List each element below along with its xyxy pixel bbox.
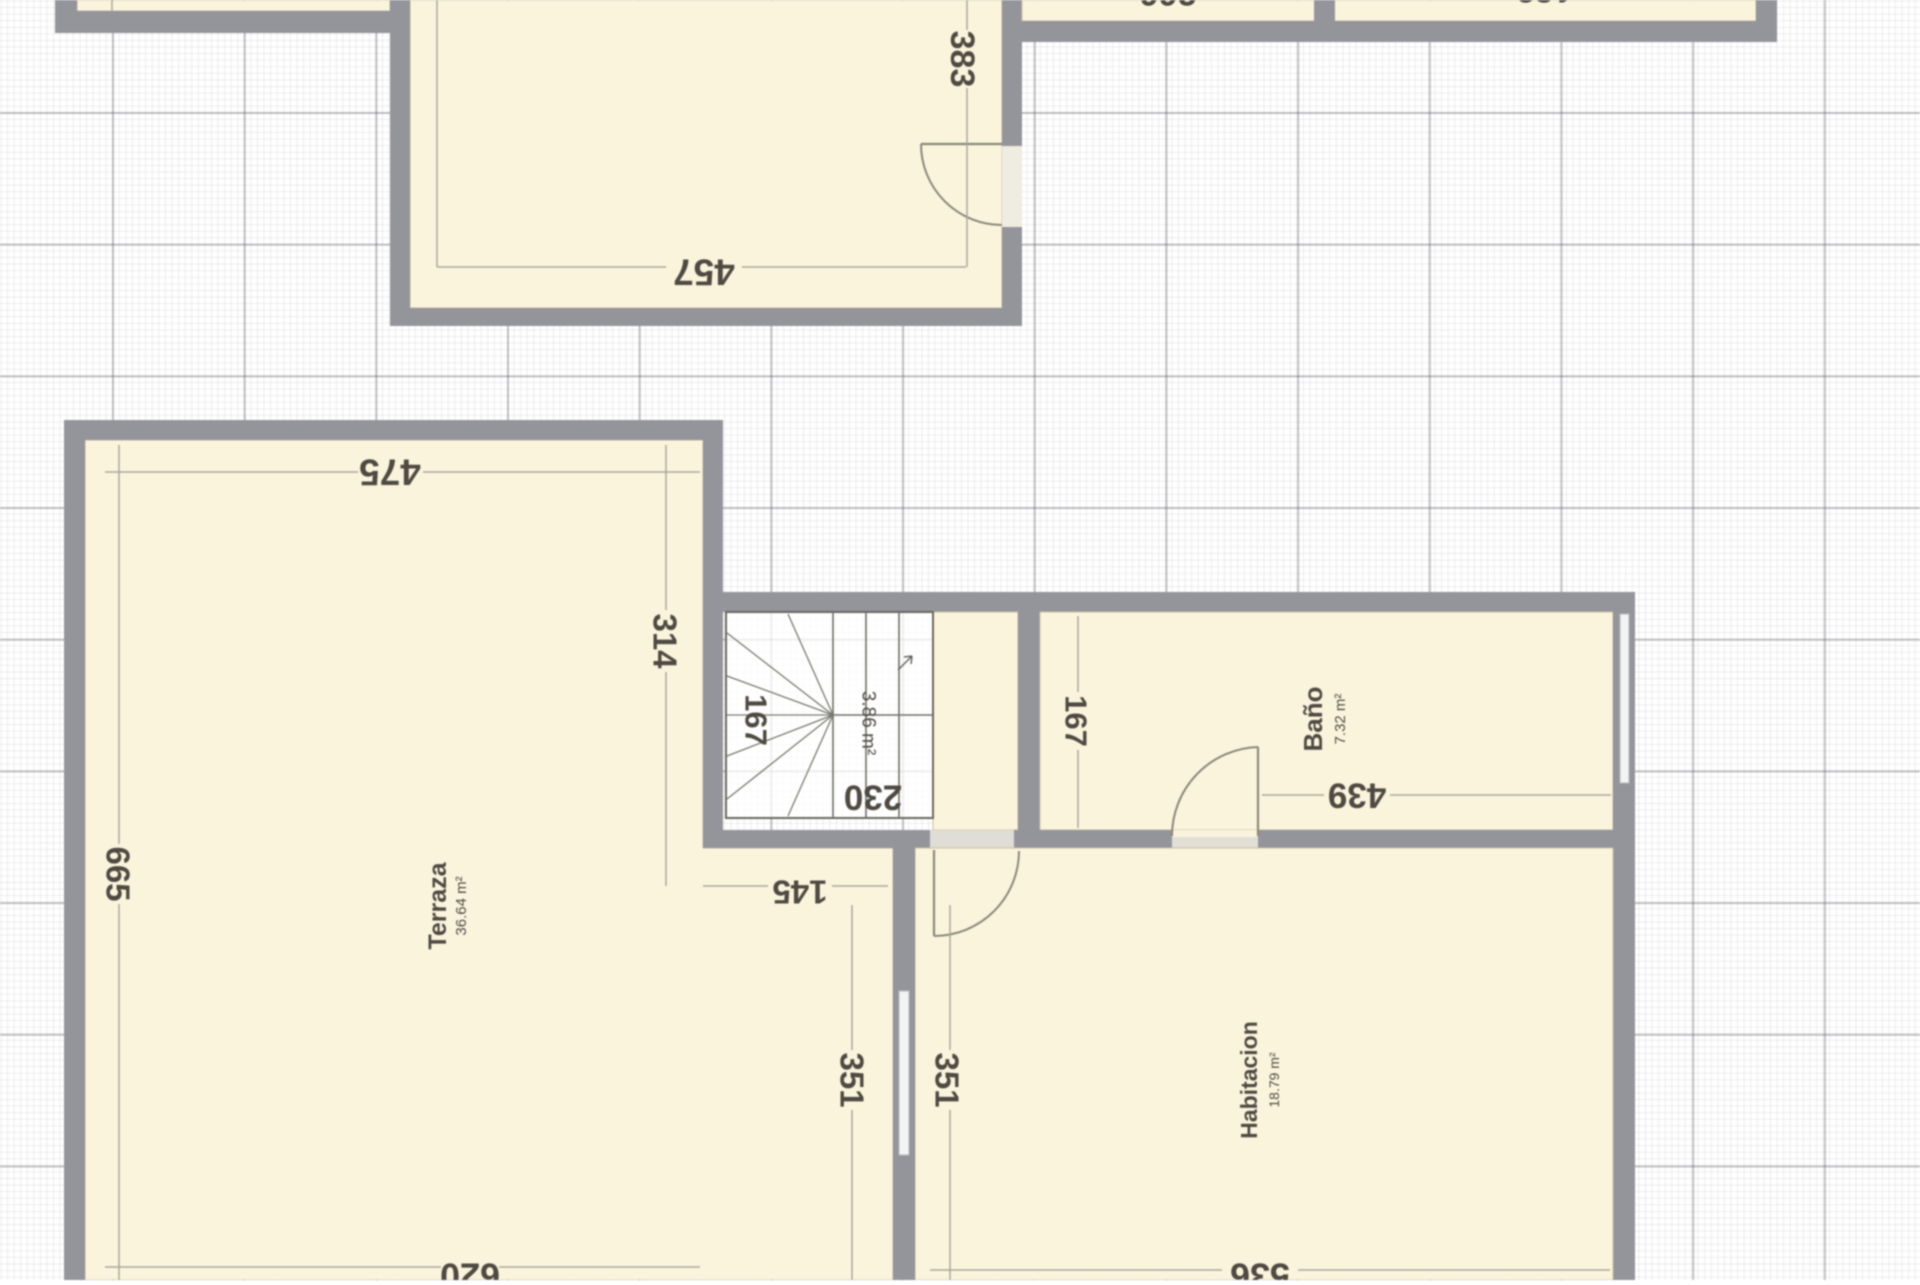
svg-text:Baño: Baño bbox=[1298, 687, 1328, 752]
svg-text:7.32 m²: 7.32 m² bbox=[1332, 694, 1349, 745]
svg-text:36.64 m²: 36.64 m² bbox=[453, 876, 470, 935]
svg-text:3.86 m²: 3.86 m² bbox=[858, 691, 879, 755]
svg-text:383: 383 bbox=[943, 31, 981, 88]
svg-text:145: 145 bbox=[772, 874, 827, 911]
svg-text:230: 230 bbox=[844, 778, 902, 817]
svg-text:665: 665 bbox=[100, 846, 137, 901]
svg-text:366: 366 bbox=[1140, 0, 1197, 12]
svg-text:183: 183 bbox=[1516, 0, 1571, 10]
svg-text:475: 475 bbox=[359, 452, 421, 493]
svg-text:Habitacion: Habitacion bbox=[1236, 1021, 1262, 1139]
svg-text:167: 167 bbox=[739, 694, 774, 746]
svg-text:314: 314 bbox=[647, 613, 684, 669]
svg-text:351: 351 bbox=[929, 1052, 966, 1107]
svg-text:439: 439 bbox=[1328, 776, 1386, 815]
svg-text:457: 457 bbox=[673, 252, 735, 293]
svg-text:536: 536 bbox=[1230, 1256, 1290, 1281]
svg-text:18.79 m²: 18.79 m² bbox=[1266, 1052, 1282, 1108]
svg-text:Terraza: Terraza bbox=[424, 861, 452, 949]
svg-text:620: 620 bbox=[440, 1256, 500, 1281]
svg-text:167: 167 bbox=[1059, 695, 1094, 747]
svg-text:351: 351 bbox=[834, 1052, 871, 1107]
